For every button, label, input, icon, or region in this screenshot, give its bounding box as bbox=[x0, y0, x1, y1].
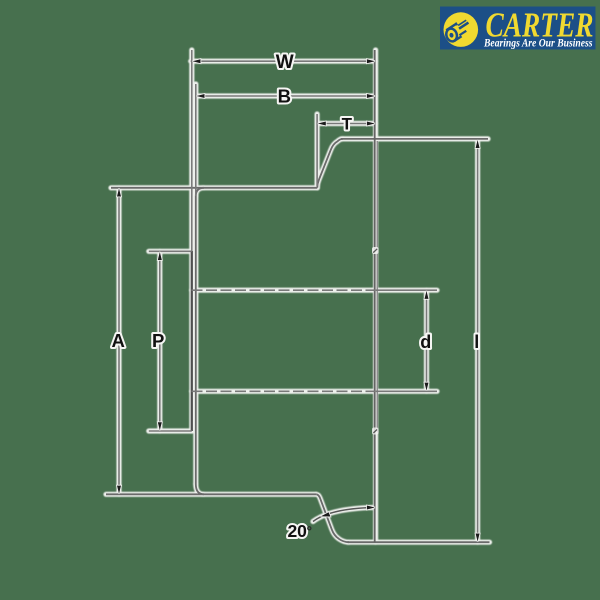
svg-text:A: A bbox=[112, 330, 125, 351]
svg-text:P: P bbox=[152, 330, 164, 351]
svg-text:l: l bbox=[474, 332, 479, 352]
svg-text:20: 20 bbox=[287, 521, 307, 541]
svg-text:B: B bbox=[278, 85, 291, 106]
svg-text:W: W bbox=[276, 52, 294, 73]
svg-text:d: d bbox=[420, 332, 431, 352]
svg-text:T: T bbox=[342, 115, 353, 134]
svg-text:Bearings Are Our Business: Bearings Are Our Business bbox=[483, 36, 593, 50]
